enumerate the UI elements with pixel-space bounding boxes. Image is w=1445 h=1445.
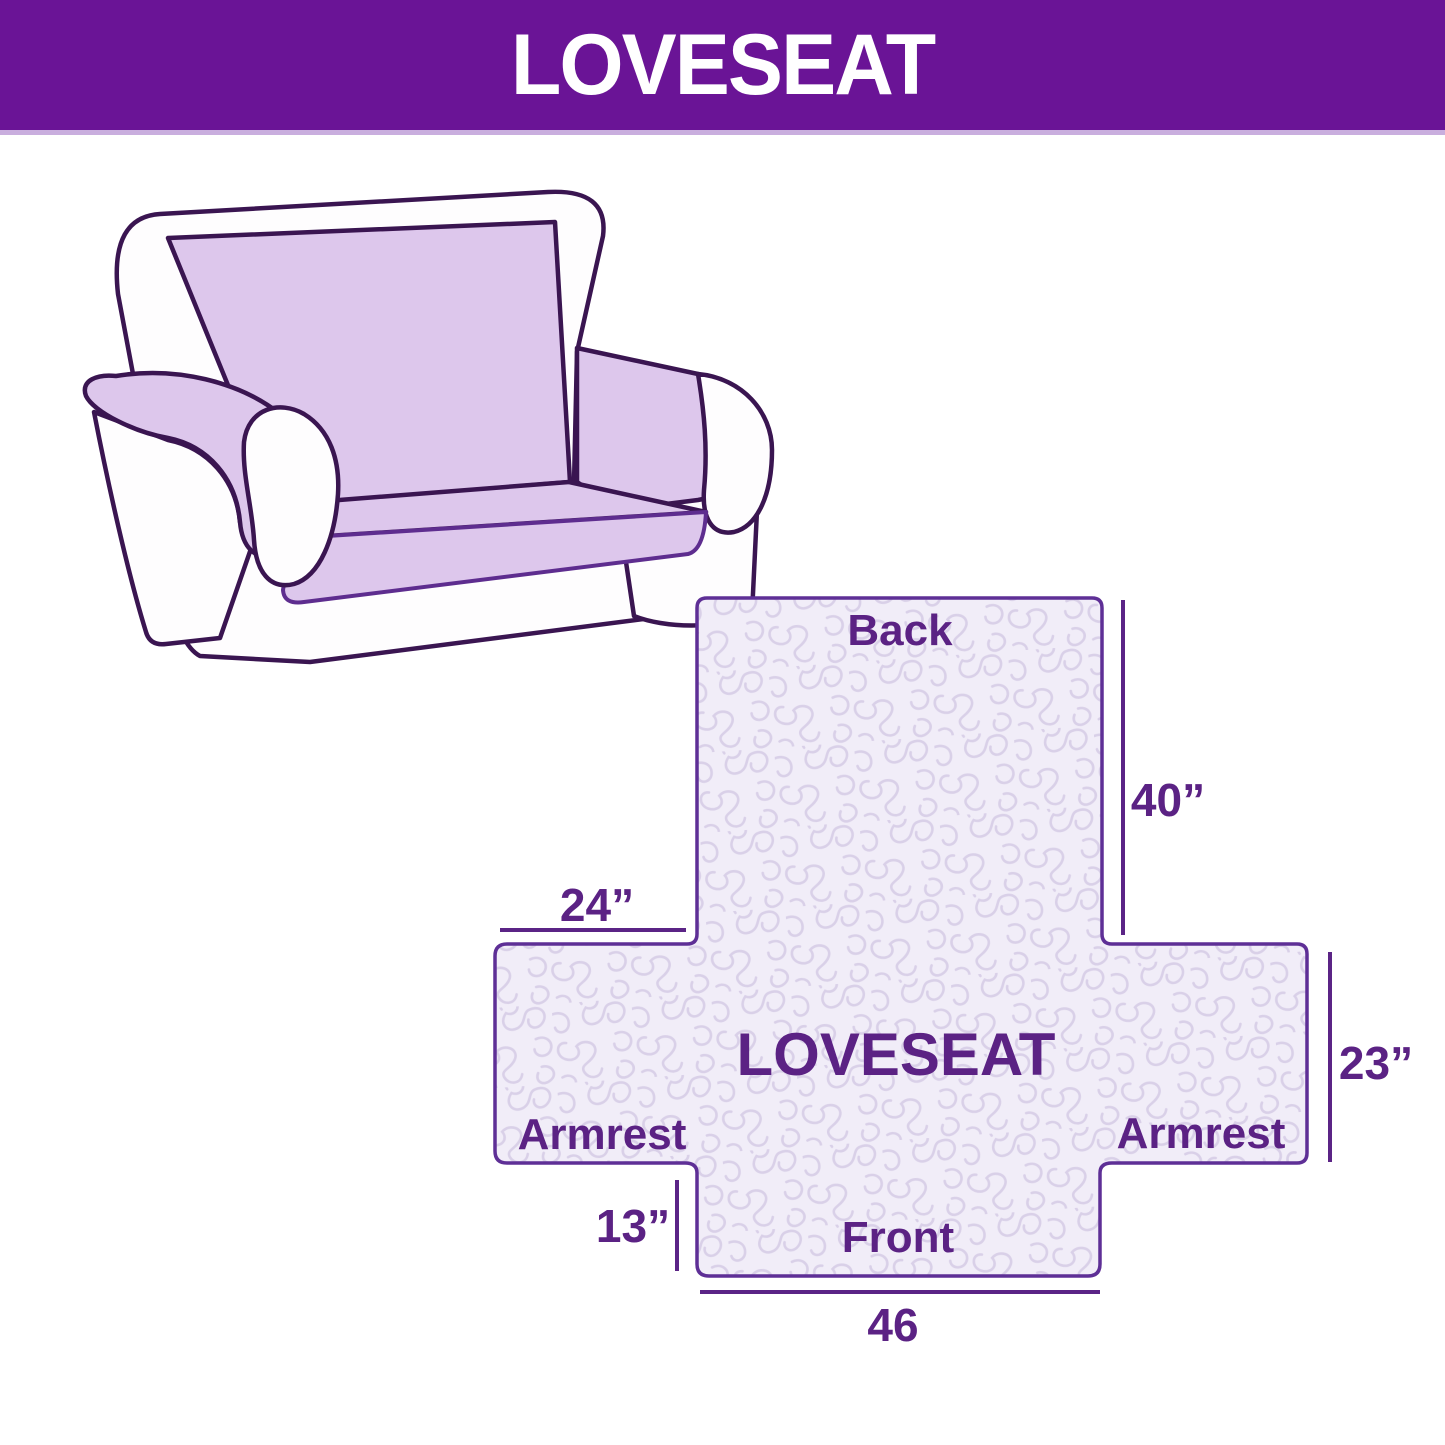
cover-outline <box>495 598 1307 1276</box>
label-24in: 24” <box>560 882 634 928</box>
label-armrest-left: Armrest <box>518 1113 687 1157</box>
label-loveseat-center: LOVESEAT <box>737 1025 1056 1085</box>
label-back: Back <box>847 609 952 653</box>
label-46: 46 <box>867 1302 918 1348</box>
label-13in: 13” <box>596 1203 670 1249</box>
slipcover-cross-shape <box>0 0 1445 1445</box>
slipcover-diagram: Back 40” 24” LOVESEAT Armrest Armrest 23… <box>0 0 1445 1445</box>
label-front: Front <box>842 1216 954 1260</box>
label-armrest-right: Armrest <box>1117 1112 1286 1156</box>
label-23in: 23” <box>1339 1040 1413 1086</box>
infographic-canvas: LOVESEAT <box>0 0 1445 1445</box>
label-40in: 40” <box>1131 777 1205 823</box>
